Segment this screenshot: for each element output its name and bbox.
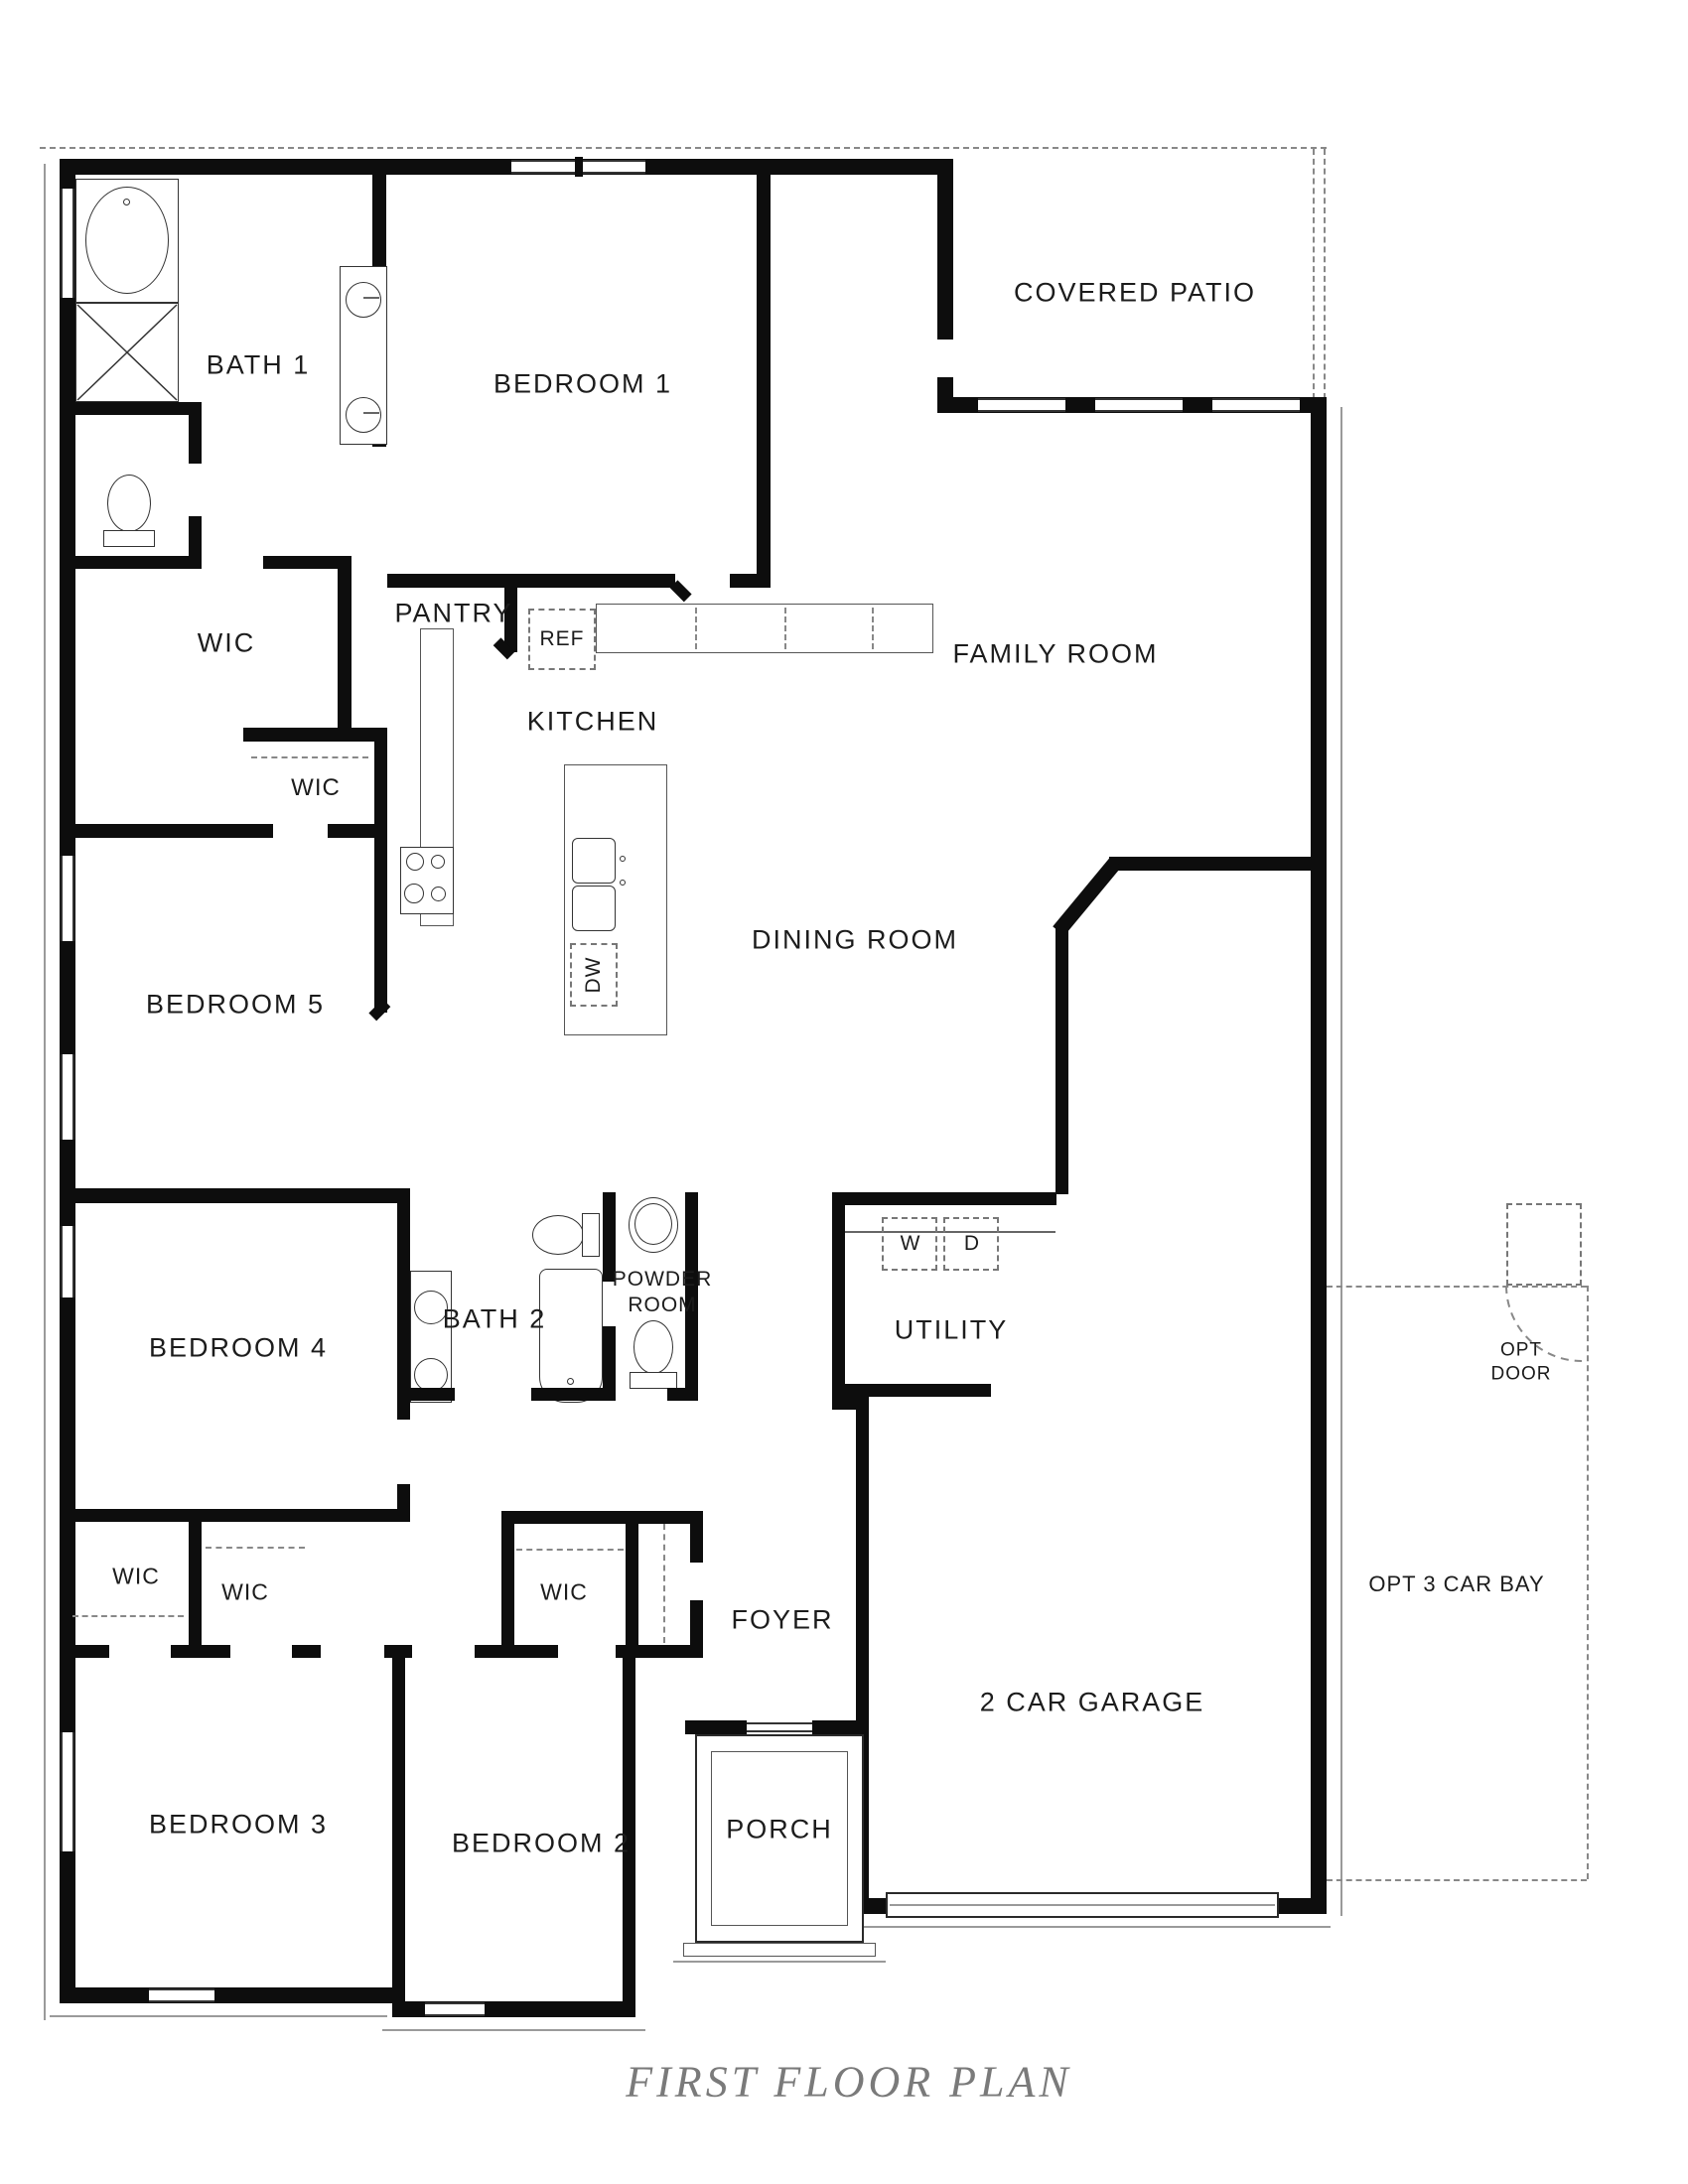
label-opt-door: OPT DOOR bbox=[1481, 1338, 1561, 1386]
label-washer: W bbox=[901, 1232, 921, 1256]
room-label-wic-bed2: WIC bbox=[540, 1579, 588, 1606]
room-label-bedroom4: BEDROOM 4 bbox=[149, 1333, 328, 1364]
room-label-porch: PORCH bbox=[726, 1815, 833, 1845]
room-label-wic-bed5: WIC bbox=[291, 774, 341, 802]
room-label-pantry: PANTRY bbox=[394, 599, 512, 629]
room-label-dining-room: DINING ROOM bbox=[752, 925, 958, 956]
label-opt-3car-bay: OPT 3 CAR BAY bbox=[1368, 1571, 1544, 1597]
room-label-bath1: BATH 1 bbox=[207, 350, 311, 381]
room-label-wic-a: WIC bbox=[112, 1564, 160, 1590]
room-label-bedroom3: BEDROOM 3 bbox=[149, 1810, 328, 1841]
label-dishwasher: DW bbox=[582, 957, 606, 994]
room-label-bedroom2: BEDROOM 2 bbox=[452, 1829, 631, 1859]
room-label-kitchen: KITCHEN bbox=[527, 707, 659, 738]
room-label-bath2: BATH 2 bbox=[443, 1304, 547, 1335]
room-label-wic-main: WIC bbox=[198, 628, 255, 659]
room-label-utility: UTILITY bbox=[895, 1315, 1009, 1346]
plan-overlay bbox=[0, 0, 1688, 2184]
floor-plan: BATH 1 BEDROOM 1 COVERED PATIO WIC PANTR… bbox=[0, 0, 1688, 2184]
room-label-garage: 2 CAR GARAGE bbox=[980, 1688, 1205, 1718]
page-title: FIRST FLOOR PLAN bbox=[626, 2057, 1071, 2108]
label-dryer: D bbox=[964, 1232, 980, 1256]
room-label-bedroom5: BEDROOM 5 bbox=[146, 990, 325, 1021]
room-label-family-room: FAMILY ROOM bbox=[952, 639, 1158, 670]
room-label-powder-room: POWDER ROOM bbox=[598, 1267, 727, 1319]
label-ref: REF bbox=[540, 627, 585, 651]
room-label-covered-patio: COVERED PATIO bbox=[1014, 278, 1256, 309]
room-label-foyer: FOYER bbox=[731, 1605, 833, 1636]
room-label-bedroom1: BEDROOM 1 bbox=[493, 369, 672, 400]
room-label-wic-b: WIC bbox=[221, 1579, 269, 1606]
